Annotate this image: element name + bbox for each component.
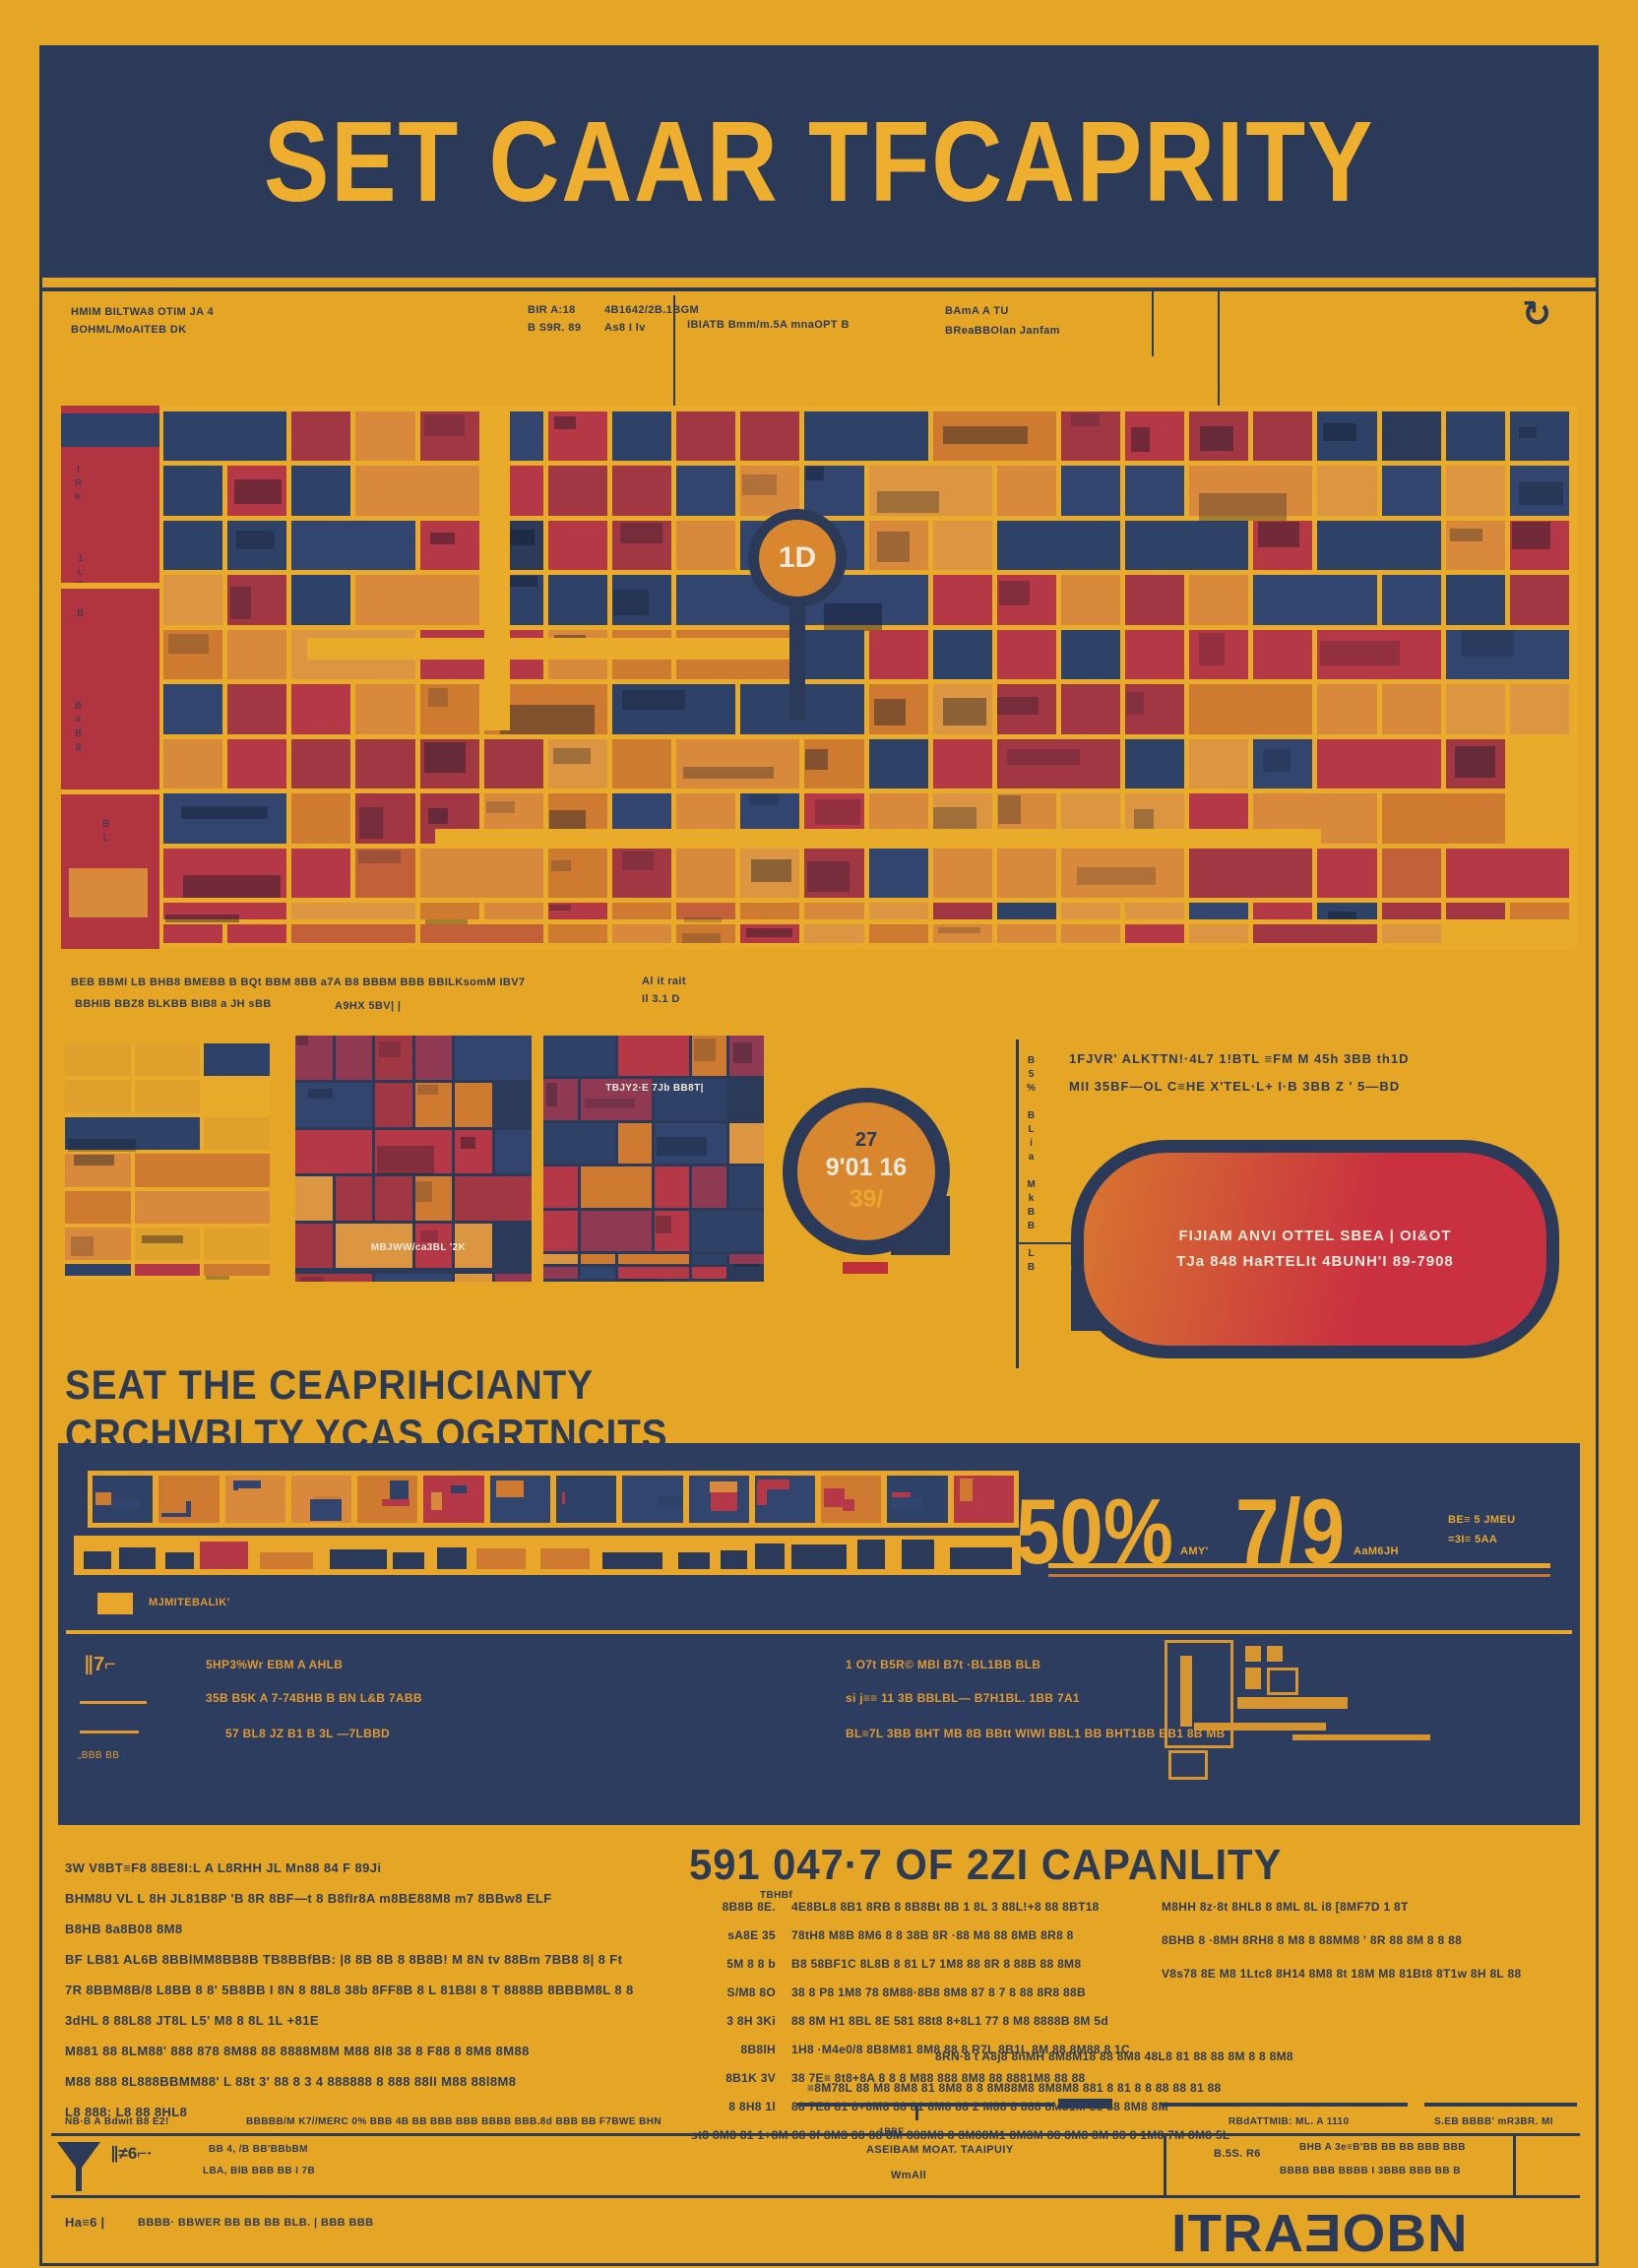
mosaic-cell <box>295 1083 372 1127</box>
mosaic-cell <box>997 739 1120 788</box>
mosaic-texture <box>206 1276 229 1280</box>
mosaic-cell <box>415 1176 453 1221</box>
mosaic-texture <box>806 467 824 480</box>
mosaic-cell <box>1125 466 1184 515</box>
mosaic-cell <box>1382 575 1441 624</box>
mosaic-texture <box>877 491 939 512</box>
mosaic-cell <box>1125 521 1248 570</box>
mosaic-texture <box>553 748 591 763</box>
band-rule-top <box>51 2133 1580 2136</box>
mosaic-cell <box>1189 575 1248 624</box>
mosaic-cell <box>612 903 671 919</box>
sidebar-block-top <box>61 413 159 447</box>
schematic-block-2 <box>1267 1646 1283 1662</box>
mosaic-texture <box>234 479 282 504</box>
mosaic-cell <box>1125 684 1184 733</box>
mosaic-texture <box>1199 493 1287 522</box>
mosaic-cell <box>455 1274 492 1282</box>
mosaic-cell <box>869 521 928 570</box>
mosaic-cell <box>1382 793 1505 843</box>
train-block <box>721 1550 747 1569</box>
mosaic-cell <box>1317 739 1440 788</box>
mosaic-cell <box>65 1264 131 1276</box>
mosaic-cell <box>676 924 735 943</box>
mosaic-cell <box>227 575 286 624</box>
mosaic-cell <box>1125 924 1184 943</box>
stat-bubble: 27 9'01 16 39/ <box>783 1088 950 1255</box>
mosaic-cell <box>65 1228 131 1260</box>
mosaic-cell <box>135 1154 270 1186</box>
mosaic-cell <box>291 466 350 515</box>
mid-annotation-right: Al it rait Il 3.1 D <box>642 973 686 1008</box>
mosaic-texture <box>428 808 448 824</box>
mosaic-cell <box>355 739 414 788</box>
mosaic-texture <box>733 1264 760 1268</box>
pill-line1: FIJIAM ANVI OTTEL SBEA | OI&OT <box>1179 1224 1452 1249</box>
divider-tick <box>915 2107 918 2120</box>
mosaic-texture <box>751 859 791 882</box>
mosaic-texture <box>424 742 466 773</box>
sidebar-scribble-3: B≡B8 <box>73 701 84 756</box>
mosaic-texture <box>546 1083 558 1107</box>
mosaic-cell <box>1253 411 1312 461</box>
table-row-label: 3 8H 3Ki <box>691 2014 776 2028</box>
mosaic-texture <box>943 698 986 726</box>
mosaic-cell <box>612 849 671 898</box>
annotation-right: BAmA A TU BReaBBOlan Janfam <box>945 301 1060 341</box>
mosaic-cell <box>1446 903 1505 919</box>
table-row: S/M8 8O38 8 P8 1M8 78 8M88·8B8 8M8 87 8 … <box>691 1985 1086 1999</box>
mosaic-cell <box>1125 575 1184 624</box>
mosaic-texture <box>749 794 779 805</box>
mosaic-texture <box>1450 529 1482 541</box>
table-row-label: 8B8lH <box>691 2043 776 2056</box>
mosaic-cell <box>933 411 1056 461</box>
mosaic-cell <box>612 521 671 570</box>
stat-side-block: BE≡ 5 JMEU =3I≡ 5AA <box>1448 1510 1516 1549</box>
paragraph-line: M881 88 8LM88' 888 878 8M88 88 8888M8M M… <box>65 2044 530 2058</box>
mosaic-cell <box>291 575 350 624</box>
frame-detail <box>711 1491 736 1512</box>
mosaic-texture <box>938 927 979 933</box>
mosaic-cell <box>543 1254 578 1263</box>
mosaic-texture <box>74 1155 114 1165</box>
stat-underline <box>1048 1563 1550 1568</box>
mosaic-cell <box>227 466 286 515</box>
mosaic-cell <box>1382 466 1441 515</box>
mosaic-texture <box>71 1236 94 1255</box>
mosaic-cell <box>1061 466 1120 515</box>
frame-detail <box>451 1485 467 1493</box>
mosaic-cell <box>612 575 671 624</box>
mosaic-cell <box>291 739 350 788</box>
frame-detail <box>111 1500 140 1507</box>
mosaic-cell <box>543 1036 615 1076</box>
annotation-m2: 4B1642/2B.1BGM As8 I lv <box>604 301 699 337</box>
mosaic-cell <box>869 849 928 898</box>
mosaic-cell <box>618 1267 690 1279</box>
mosaic-cell <box>455 1036 532 1080</box>
row2-divider <box>1016 1039 1019 1368</box>
mosaic-cell <box>135 1264 201 1276</box>
mosaic-texture <box>1131 427 1150 453</box>
mosaic-cell <box>1510 684 1569 733</box>
mid-annotation-line2: BBHIB BBZ8 BLKBB BIB8 a JH sBB <box>75 998 272 1010</box>
paragraph-line: 3dHL 8 88L88 JT8L L5' M8 8 8L 1L +81E <box>65 2013 319 2028</box>
mosaic-cell <box>548 849 607 898</box>
divider-seg-3 <box>1424 2103 1577 2107</box>
filmstrip-frame <box>357 1476 417 1523</box>
mosaic-texture <box>168 634 209 654</box>
schematic-hook <box>1168 1750 1208 1780</box>
mosaic-cell <box>729 1166 764 1208</box>
mosaic-texture <box>486 801 515 813</box>
mosaic-cell <box>933 684 992 733</box>
mosaic-cell <box>543 1211 578 1252</box>
train-block <box>755 1543 785 1569</box>
mosaic-cell <box>692 1036 726 1076</box>
mosaic-cell <box>204 1264 270 1276</box>
band-left-line1: BB 4, /B BB'BBbBM <box>209 2144 308 2155</box>
bubble-tick <box>843 1262 888 1274</box>
mosaic-cell <box>729 1036 764 1076</box>
mosaic-texture <box>358 850 401 863</box>
annotation-right-line1: BAmA A TU <box>945 301 1060 321</box>
paragraph-line: 7R 8BBM8B/8 L8BB 8 8' 5B8BB I 8N 8 88L8 … <box>65 1983 634 1997</box>
mosaic-cell <box>740 466 799 515</box>
mosaic-cell <box>163 903 286 919</box>
mosaic-cell <box>740 903 799 919</box>
mosaic-cell <box>1382 849 1441 898</box>
train-block <box>393 1552 424 1569</box>
paragraph-line: 3W V8BT≡F8 8BE8I:L A L8RHH JL Mn88 84 F … <box>65 1860 381 1875</box>
mosaic-texture <box>1263 749 1291 772</box>
mosaic-texture <box>1200 426 1233 451</box>
stat-value-2: 7/9 <box>1235 1479 1345 1585</box>
bubble-line3: 39/ <box>850 1184 884 1215</box>
mosaic-texture <box>230 587 251 619</box>
mosaic-cell <box>204 1043 270 1076</box>
mosaic-texture <box>694 1039 716 1061</box>
mid-annotation-right-line1: Al it rait <box>642 973 686 990</box>
mosaic-texture <box>551 860 572 871</box>
mosaic-texture <box>428 688 448 707</box>
pill-line2: TJa 848 HaRTELIt 4BUNH'I 89-7908 <box>1176 1249 1454 1275</box>
mosaic-texture <box>620 523 662 543</box>
mosaic-cell <box>612 411 671 461</box>
mosaic-cell <box>1382 903 1441 919</box>
right-col-line: M8HH 8z·8t 8HL8 8 8ML 8L i8 [8MF7D 1 8T <box>1162 1900 1409 1914</box>
mosaic-texture <box>815 799 860 825</box>
stats-row-left-3: 57 BL8 JZ B1 B 3L —7LBBD <box>225 1727 390 1740</box>
mosaic-texture <box>142 1235 182 1242</box>
mosaic-cell <box>655 1166 689 1208</box>
mosaic-cell <box>612 466 671 515</box>
stat-value-1-note: AMY' <box>1180 1545 1209 1557</box>
divider-block <box>1058 2099 1112 2109</box>
mosaic-cell <box>295 1130 372 1174</box>
mid-annotation-right-line2: Il 3.1 D <box>642 990 686 1008</box>
mosaic-cell <box>1382 924 1441 943</box>
mosaic-cell <box>543 1166 578 1208</box>
mosaic-texture <box>1071 413 1100 426</box>
mosaic-cell <box>65 1080 131 1112</box>
frame-detail <box>160 1487 185 1513</box>
mosaic-texture <box>824 603 882 631</box>
mosaic-cell <box>997 924 1056 943</box>
mosaic-cell <box>355 411 414 461</box>
mosaic-texture <box>1519 427 1537 438</box>
mosaic-texture <box>682 933 721 943</box>
mosaic-cell <box>1253 903 1312 919</box>
mosaic-cell <box>495 1274 533 1282</box>
mosaic-cell <box>997 903 1056 919</box>
paragraph-line: M88 888 8L888BBMM88' L 88t 3' 88 8 3 4 8… <box>65 2074 516 2089</box>
mosaic-cell <box>1510 411 1569 461</box>
mosaic-cell <box>581 1211 653 1252</box>
mosaic-cell <box>1510 575 1569 624</box>
small-map-b-caption: MBJWW/ca3BL '2K <box>325 1242 512 1253</box>
mosaic-texture <box>807 861 850 891</box>
schematic-outline <box>1165 1640 1233 1748</box>
sidebar-gap-2 <box>61 789 159 794</box>
small-map-c <box>543 1036 764 1282</box>
filmstrip-frame <box>158 1476 219 1523</box>
mosaic-cell <box>933 739 992 788</box>
frame-detail <box>382 1499 409 1506</box>
paragraph-line: B8HB 8a8B08 8M8 <box>65 1921 182 1936</box>
mosaic-texture <box>656 1216 671 1232</box>
annotation-left: HMIM BILTWA8 OTIM JA 4 BOHML/MoAITEB DK <box>71 303 214 339</box>
band-box-left <box>1164 2136 1166 2195</box>
filmstrip-frame <box>689 1476 749 1523</box>
panel-rule <box>66 1630 1572 1634</box>
mosaic-cell <box>484 903 543 919</box>
mosaic-cell <box>455 1083 492 1127</box>
mosaic-cell <box>676 739 799 788</box>
sidebar-gap-1 <box>61 583 159 589</box>
mosaic-cell <box>1189 684 1312 733</box>
mosaic-cell <box>227 739 286 788</box>
mosaic-cell <box>1382 684 1441 733</box>
mosaic-texture <box>683 767 774 779</box>
mosaic-texture <box>461 1137 476 1149</box>
table-row-label: 8 8H8 1l <box>691 2100 776 2113</box>
mosaic-texture <box>746 928 792 937</box>
filmstrip-frame <box>821 1476 881 1523</box>
street-vertical <box>484 406 510 730</box>
mosaic-texture <box>554 416 576 430</box>
train-block <box>476 1548 526 1569</box>
mosaic-cell <box>1125 739 1184 788</box>
mosaic-cell <box>869 466 992 515</box>
lower-right-line: ≡8M78L 88 M8 8M8 81 8M8 8 8 8M88M8 8M8M8… <box>807 2081 1222 2095</box>
mosaic-texture <box>181 806 268 819</box>
mosaic-cell <box>676 411 735 461</box>
mosaic-texture <box>1077 867 1156 885</box>
mosaic-cell <box>65 1154 131 1186</box>
mosaic-texture <box>68 1139 135 1151</box>
mosaic-cell <box>1189 903 1248 919</box>
mosaic-texture <box>379 1041 401 1057</box>
mosaic-cell <box>933 521 992 570</box>
mosaic-cell <box>420 739 479 788</box>
mosaic-cell <box>997 684 1056 733</box>
mosaic-texture <box>417 1085 438 1096</box>
map-pin-label: 1D <box>779 541 816 575</box>
mosaic-cell <box>415 1083 453 1127</box>
annotation-left-line1: HMIM BILTWA8 OTIM JA 4 <box>71 303 214 321</box>
mosaic-cell <box>1189 849 1312 898</box>
mosaic-texture <box>1462 630 1514 657</box>
table-row: sA8E 3578tH8 M8B 8M6 8 8 38B 8R ·88 M8 8… <box>691 1928 1074 1942</box>
frame-detail <box>892 1497 923 1509</box>
mosaic-cell <box>612 684 735 733</box>
annotation-divider-3 <box>1218 291 1220 406</box>
final-row-text: BBBB· BBWER BB BB BB BLB. | BBB BBB <box>138 2217 374 2229</box>
mosaic-texture <box>1328 912 1356 918</box>
mosaic-cell <box>227 684 286 733</box>
refresh-icon: ↻ <box>1522 293 1551 335</box>
filmstrip-frame <box>291 1476 351 1523</box>
mosaic-texture <box>997 697 1039 715</box>
mosaic-texture <box>805 749 827 770</box>
mosaic-cell <box>1510 466 1569 515</box>
mosaic-texture <box>613 590 649 615</box>
annotation-right-line2: BReaBBOlan Janfam <box>945 321 1060 341</box>
mosaic-texture <box>424 414 465 436</box>
mosaic-texture <box>619 1279 664 1282</box>
filmstrip-frame <box>755 1476 815 1523</box>
schematic-rail-1 <box>1194 1723 1326 1731</box>
mosaic-cell <box>612 924 671 943</box>
callout-pill: FIJIAM ANVI OTTEL SBEA | OI&OT TJa 848 H… <box>1071 1140 1559 1358</box>
banner-divider <box>39 287 1599 291</box>
mosaic-cell <box>1061 684 1120 733</box>
mosaic-cell <box>1061 849 1184 898</box>
mosaic-cell <box>997 466 1056 515</box>
mosaic-cell <box>484 739 543 788</box>
band-mid-line2: WmAll <box>891 2170 926 2181</box>
table-row-text: 4E8BL8 8B1 8RB 8 8B8Bt 8B 1 8L 3 88L!+8 … <box>791 1900 1100 1914</box>
mosaic-cell <box>740 849 799 898</box>
mosaic-cell <box>548 575 607 624</box>
train-block <box>678 1552 710 1569</box>
mosaic-cell <box>548 411 607 461</box>
mosaic-cell <box>804 903 863 919</box>
footer-row-right-2: S.EB BBBB' mR3BR. MI <box>1434 2116 1553 2127</box>
mosaic-cell <box>804 924 863 943</box>
mosaic-cell <box>375 1130 452 1174</box>
mosaic-cell <box>1317 630 1440 679</box>
mosaic-texture <box>998 795 1021 824</box>
mosaic-texture <box>300 1277 325 1282</box>
mosaic-cell <box>869 630 928 679</box>
schematic-shelf <box>1237 1697 1348 1709</box>
mosaic-cell <box>804 849 863 898</box>
mosaic-texture <box>377 1146 435 1174</box>
mosaic-cell <box>1317 521 1440 570</box>
mosaic-cell <box>1510 521 1569 570</box>
mosaic-cell <box>543 1123 615 1164</box>
mosaic-cell <box>997 630 1056 679</box>
mosaic-cell <box>548 521 607 570</box>
mosaic-cell <box>204 1117 270 1150</box>
mosaic-cell <box>1253 630 1312 679</box>
mosaic-cell <box>65 1191 131 1224</box>
mosaic-texture <box>1134 809 1153 830</box>
mosaic-cell <box>1446 521 1505 570</box>
annotation-m1-line1: BIR A:18 <box>528 301 581 319</box>
mosaic-cell <box>1253 521 1312 570</box>
mosaic-cell <box>676 466 735 515</box>
map-red-sidebar: tRK 1L7 B B≡B8 BL <box>61 406 159 949</box>
mosaic-cell <box>676 903 735 919</box>
mosaic-cell <box>933 903 992 919</box>
table-row-label: sA8E 35 <box>691 1928 776 1942</box>
mosaic-cell <box>420 521 479 570</box>
mosaic-cell <box>740 924 799 943</box>
mosaic-cell <box>163 739 222 788</box>
street-horizontal-1 <box>307 638 799 660</box>
mosaic-cell <box>933 849 992 898</box>
stat-side-line1: BE≡ 5 JMEU <box>1448 1510 1516 1530</box>
band-label: B.5S. R6 <box>1214 2148 1261 2160</box>
schematic-block-3 <box>1245 1668 1261 1689</box>
stat-value-1: 50% <box>1016 1479 1173 1585</box>
filmstrip-frame <box>622 1476 682 1523</box>
row2-vertical-note: B5% BLia MkBB LB <box>1026 1055 1037 1282</box>
mosaic-cell <box>804 411 927 461</box>
small-map-a <box>65 1043 270 1280</box>
mosaic-cell <box>1446 575 1505 624</box>
table-row-text: 88 8M H1 8BL 8E 581 88t8 8+8L1 77 8 M8 8… <box>791 2014 1108 2028</box>
table-row-label: 8B1K 3V <box>691 2071 776 2085</box>
mosaic-texture <box>1258 522 1299 547</box>
annotation-m1-line2: B S9R. 89 <box>528 319 581 337</box>
frame-detail <box>960 1479 973 1501</box>
train-block <box>330 1549 386 1569</box>
train-block <box>791 1544 848 1569</box>
mosaic-texture <box>308 1089 333 1099</box>
table-row: 8B8B 8E.4E8BL8 8B1 8RB 8 8B8Bt 8B 1 8L 3… <box>691 1900 1100 1914</box>
mosaic-cell <box>997 849 1056 898</box>
small-map-c-caption: TBJY2·E 7Jb BB8T| <box>566 1083 743 1094</box>
mosaic-cell <box>1061 924 1120 943</box>
mosaic-cell <box>618 1036 690 1076</box>
mosaic-cell <box>1061 411 1120 461</box>
mosaic-cell <box>415 1036 453 1080</box>
mosaic-cell <box>1061 575 1120 624</box>
mosaic-cell <box>933 924 992 943</box>
mosaic-cell <box>227 924 286 943</box>
mosaic-cell <box>163 630 222 679</box>
funnel-icon-stem <box>76 2166 82 2191</box>
mosaic-cell <box>1317 903 1376 919</box>
annotation-m2-line1: 4B1642/2B.1BGM <box>604 301 699 319</box>
mosaic-cell <box>355 684 414 733</box>
mosaic-cell <box>291 521 414 570</box>
annotation-m2-line2: As8 I lv <box>604 319 699 337</box>
table-row-text: B8 58BF1C 8L8B 8 81 L7 1M8 88 8R 8 88B 8… <box>791 1957 1081 1971</box>
mosaic-cell <box>455 1176 532 1221</box>
mosaic-cell <box>355 575 478 624</box>
band-rule-bottom <box>51 2195 1580 2198</box>
mosaic-texture <box>165 914 239 923</box>
right-col-line: 8BHB 8 ·8MH 8RH8 8 M8 8 88MM8 ' 8R 88 8M… <box>1162 1933 1462 1947</box>
train-block <box>857 1540 884 1569</box>
mosaic-cell <box>227 630 286 679</box>
